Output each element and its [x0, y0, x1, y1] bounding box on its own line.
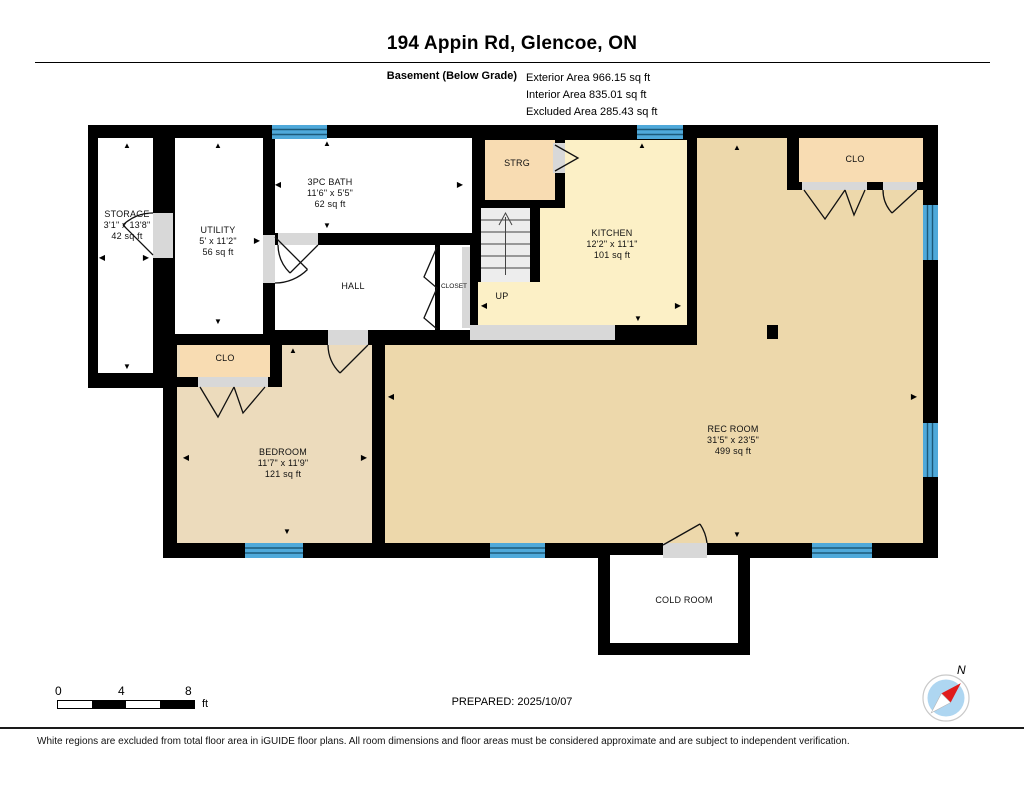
- label-kitchen: KITCHEN12'2" x 11'1"101 sq ft: [586, 228, 637, 260]
- compass-north-label: N: [957, 663, 966, 677]
- dim-arrow-right: ▶: [675, 302, 681, 310]
- bath-door-sill: [278, 233, 318, 245]
- window-bedroom: [245, 543, 303, 558]
- floorplan-sheet: 194 Appin Rd, Glencoe, ON Basement (Belo…: [0, 0, 1024, 791]
- page-title: 194 Appin Rd, Glencoe, ON: [0, 33, 1024, 55]
- label-rec: REC ROOM31'5" x 23'5"499 sq ft: [707, 424, 759, 456]
- floor-label: Basement (Below Grade): [0, 70, 517, 82]
- dim-arrow-down: ▼: [733, 531, 741, 539]
- label-closet: CLOSET: [441, 283, 467, 291]
- excluded-area: Excluded Area 285.43 sq ft: [526, 104, 657, 121]
- disclaimer-text: White regions are excluded from total fl…: [37, 736, 850, 747]
- dim-arrow-left: ◀: [275, 181, 281, 189]
- clo-right-bifold-sill: [802, 182, 867, 190]
- compass: N: [916, 660, 980, 726]
- dim-arrow-right: ▶: [143, 254, 149, 262]
- dim-arrow-right: ▶: [911, 393, 917, 401]
- interior-area: Interior Area 835.01 sq ft: [526, 87, 657, 104]
- dim-arrow-down: ▼: [283, 528, 291, 536]
- clo-left-door-sill: [198, 377, 268, 387]
- room-stair-landing: [478, 282, 540, 325]
- room-bath: [275, 138, 472, 233]
- dim-arrow-right: ▶: [361, 454, 367, 462]
- window-rec-bottom-left: [490, 543, 545, 558]
- room-strg: [485, 140, 555, 200]
- label-clo-left: CLO: [215, 353, 234, 364]
- dim-arrow-up: ▲: [323, 140, 331, 148]
- footer-divider: [0, 727, 1024, 729]
- floorplan-svg: [88, 125, 938, 655]
- utility-door-sill: [263, 235, 275, 283]
- label-clo-right: CLO: [845, 154, 864, 165]
- dim-arrow-right: ▶: [254, 237, 260, 245]
- cold-door-sill: [663, 543, 707, 558]
- label-utility: UTILITY5' x 11'2"56 sq ft: [199, 225, 237, 257]
- window-kitchen: [637, 125, 683, 139]
- dim-arrow-left: ◀: [183, 454, 189, 462]
- dim-arrow-up: ▲: [214, 142, 222, 150]
- dim-arrow-left: ◀: [99, 254, 105, 262]
- header-divider: [35, 62, 990, 63]
- dim-arrow-up: ▲: [638, 142, 646, 150]
- dim-arrow-up: ▲: [733, 144, 741, 152]
- label-bath: 3PC BATH11'6" x 5'5"62 sq ft: [307, 177, 353, 209]
- clo-left-wall-right: [270, 345, 282, 387]
- kitchen-opening-sill: [470, 325, 615, 340]
- label-storage: STORAGE3'1" x 13'8"42 sq ft: [104, 209, 151, 241]
- label-bedroom: BEDROOM11'7" x 11'9"121 sq ft: [258, 447, 309, 479]
- label-strg: STRG: [504, 158, 530, 169]
- room-rec-lower: [385, 345, 923, 543]
- window-rec-bottom-right: [812, 543, 872, 558]
- label-cold: COLD ROOM: [655, 595, 712, 606]
- floorplan-drawing: STORAGE3'1" x 13'8"42 sq ft UTILITY5' x …: [88, 125, 938, 655]
- dim-arrow-right: ▶: [457, 181, 463, 189]
- label-hall: HALL: [341, 281, 364, 292]
- dim-arrow-down: ▼: [634, 315, 642, 323]
- dim-arrow-up: ▲: [123, 142, 131, 150]
- dim-arrow-up: ▲: [289, 347, 297, 355]
- dim-arrow-down: ▼: [214, 318, 222, 326]
- window-rec-right-top: [923, 205, 938, 260]
- window-rec-right-bottom: [923, 423, 938, 477]
- prepared-date: PREPARED: 2025/10/07: [0, 696, 1024, 708]
- compass-icon: N: [916, 660, 980, 726]
- window-bath: [272, 125, 327, 139]
- dim-arrow-left: ◀: [481, 302, 487, 310]
- area-summary: Exterior Area 966.15 sq ft Interior Area…: [526, 70, 657, 121]
- storage-door-sill: [153, 213, 173, 258]
- support-column: [767, 325, 778, 339]
- dim-arrow-down: ▼: [123, 363, 131, 371]
- dim-arrow-left: ◀: [388, 393, 394, 401]
- dim-arrow-down: ▼: [323, 222, 331, 230]
- bedroom-door-sill: [328, 330, 368, 345]
- label-up: UP: [496, 291, 509, 302]
- room-kitchen-lower: [540, 208, 687, 325]
- exterior-area: Exterior Area 966.15 sq ft: [526, 70, 657, 87]
- room-kitchen-upper: [565, 140, 687, 208]
- clo-right-door-sill: [883, 182, 917, 190]
